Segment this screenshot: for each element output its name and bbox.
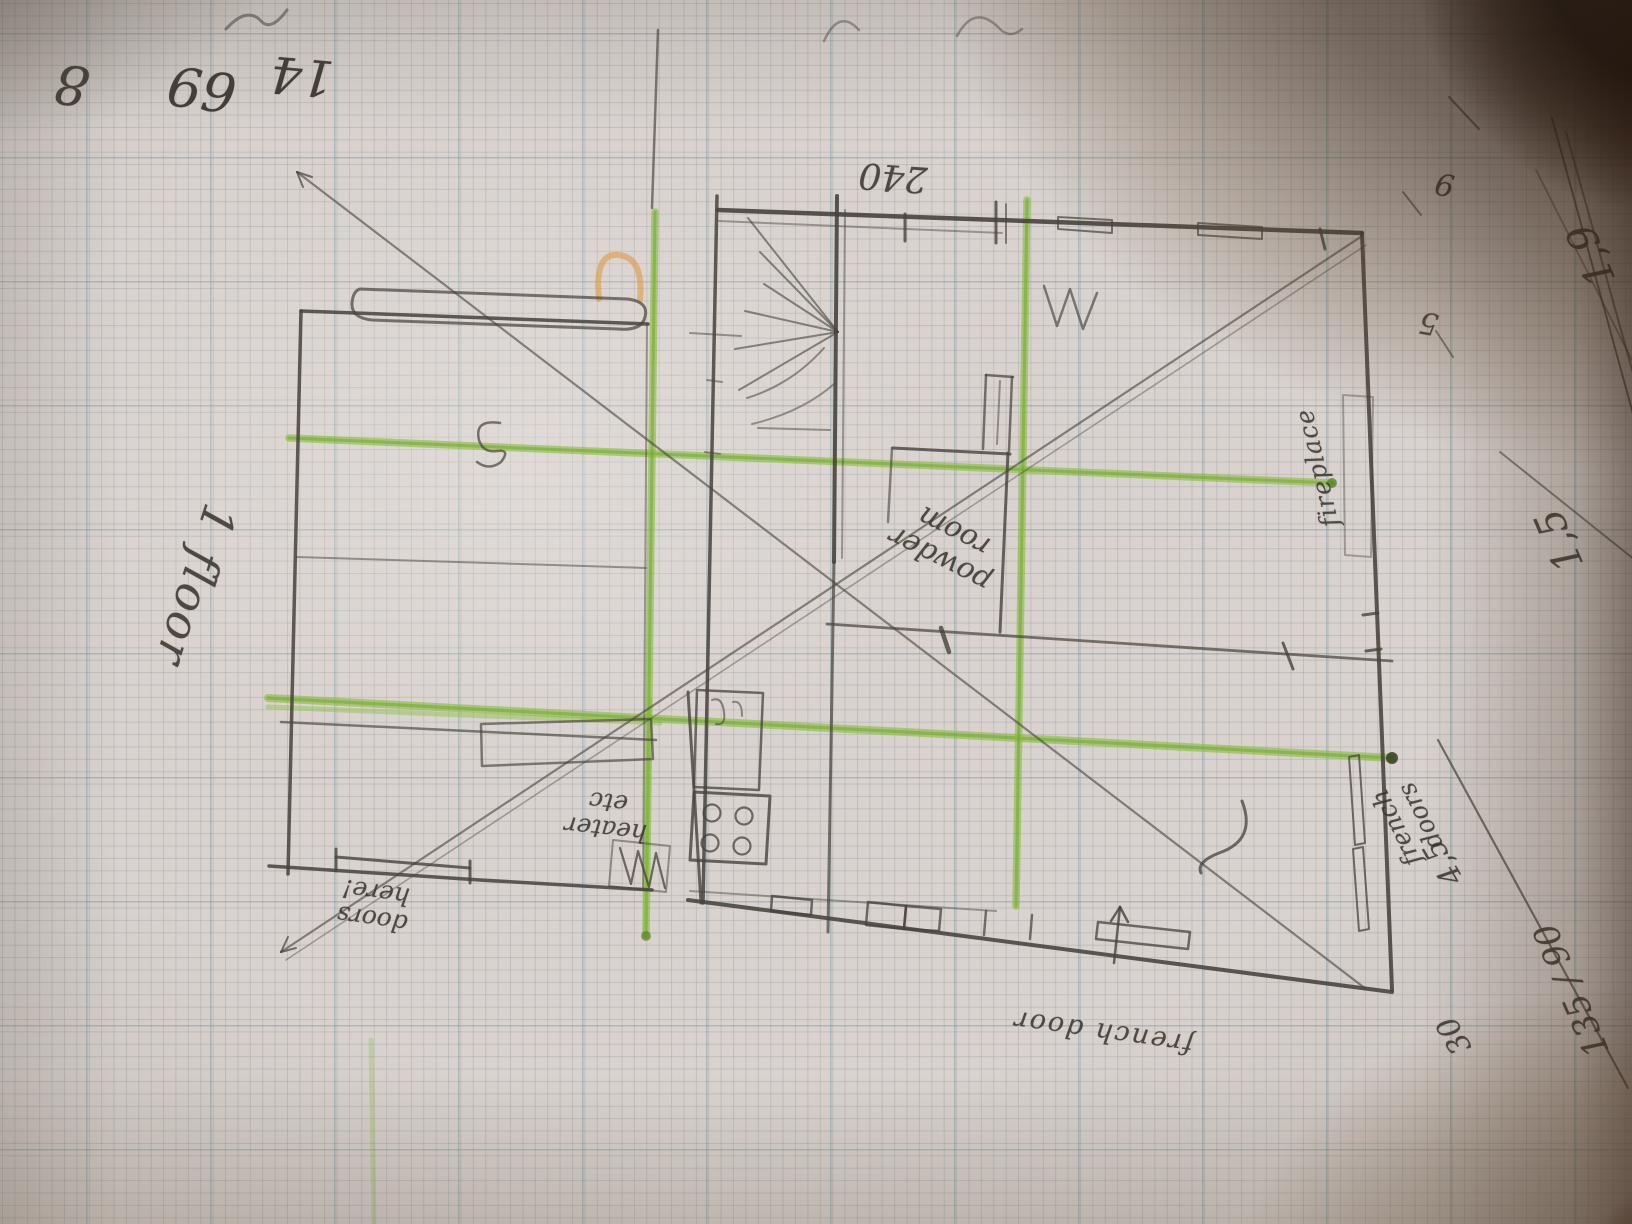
margin-strikethrough-marks — [0, 0, 1632, 1224]
photo-of-floor-plan-sketch: 8 69 14 1 floor 240 powder room fireplac… — [0, 0, 1632, 1224]
